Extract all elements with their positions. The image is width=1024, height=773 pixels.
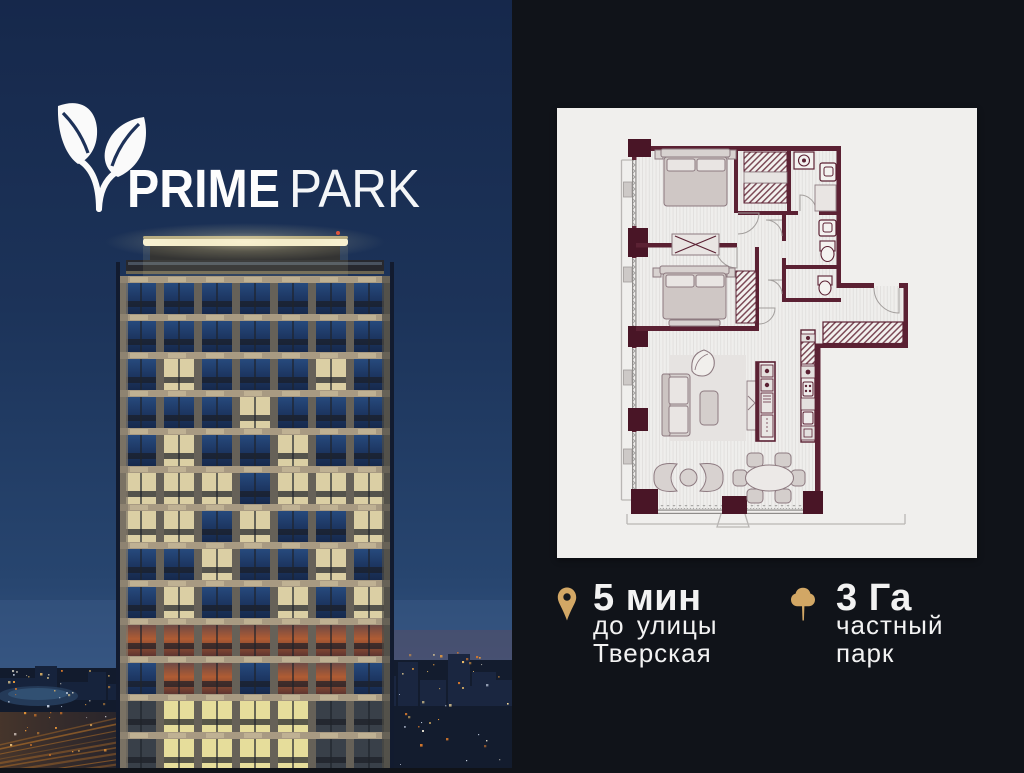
svg-text:PRIME: PRIME [127, 159, 280, 219]
svg-text:PARK: PARK [289, 159, 420, 219]
